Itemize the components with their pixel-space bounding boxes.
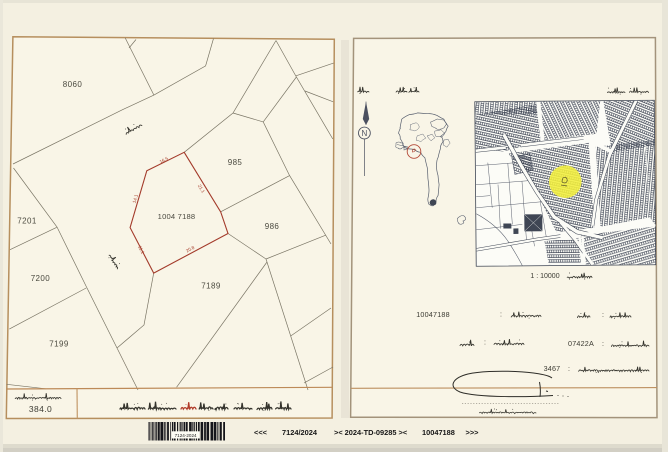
svg-text:7200: 7200 bbox=[31, 274, 51, 283]
svg-text:7189: 7189 bbox=[201, 282, 221, 291]
svg-text:7124-2024: 7124-2024 bbox=[175, 433, 197, 438]
svg-text:1004 7188: 1004 7188 bbox=[158, 212, 196, 221]
svg-text:10047188: 10047188 bbox=[416, 310, 450, 319]
svg-text::: : bbox=[500, 312, 502, 319]
svg-text:985: 985 bbox=[228, 158, 243, 167]
svg-text::: : bbox=[568, 366, 570, 373]
svg-text::: : bbox=[602, 312, 604, 319]
svg-text::: : bbox=[484, 340, 486, 347]
svg-text:10047188: 10047188 bbox=[422, 428, 455, 437]
svg-text:>< 2024-TD-09285 ><: >< 2024-TD-09285 >< bbox=[334, 428, 408, 437]
svg-text:7199: 7199 bbox=[49, 340, 69, 349]
svg-text:3467: 3467 bbox=[544, 364, 561, 373]
svg-text:<<<: <<< bbox=[254, 428, 268, 437]
svg-text:N: N bbox=[362, 129, 368, 138]
svg-text:1 : 10000: 1 : 10000 bbox=[530, 273, 559, 280]
svg-text::: : bbox=[602, 341, 604, 348]
svg-text:7201: 7201 bbox=[17, 217, 37, 226]
svg-text:7124/2024: 7124/2024 bbox=[282, 428, 318, 437]
svg-text:07422A: 07422A bbox=[568, 339, 594, 348]
svg-text:384.0: 384.0 bbox=[29, 404, 52, 414]
svg-text:8060: 8060 bbox=[63, 80, 83, 89]
svg-text:>>>: >>> bbox=[466, 428, 480, 437]
svg-text:986: 986 bbox=[265, 222, 280, 231]
